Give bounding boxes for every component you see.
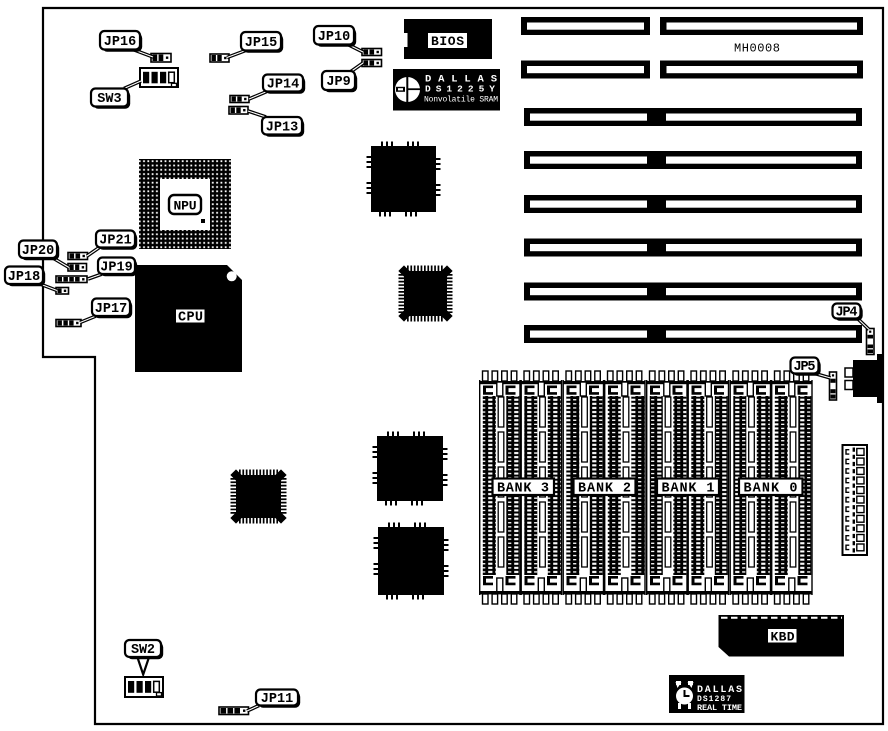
svg-text:Nonvolatile SRAM: Nonvolatile SRAM xyxy=(424,96,498,105)
svg-text:MH0008: MH0008 xyxy=(734,42,780,56)
svg-text:SW3: SW3 xyxy=(97,92,121,107)
svg-text:BANK 2: BANK 2 xyxy=(578,482,631,497)
svg-text:JP15: JP15 xyxy=(245,36,277,51)
svg-text:JP9: JP9 xyxy=(326,75,350,90)
svg-text:JP11: JP11 xyxy=(261,692,293,707)
svg-text:BANK 1: BANK 1 xyxy=(662,482,715,497)
svg-text:JP4: JP4 xyxy=(836,306,858,321)
svg-text:JP20: JP20 xyxy=(22,244,54,259)
svg-text:BANK 0: BANK 0 xyxy=(744,482,798,497)
svg-text:NPU: NPU xyxy=(174,199,197,214)
svg-text:JP17: JP17 xyxy=(95,302,127,317)
svg-text:KBD: KBD xyxy=(771,630,795,645)
svg-text:SW2: SW2 xyxy=(131,643,155,658)
svg-text:JP16: JP16 xyxy=(104,35,136,50)
svg-text:JP5: JP5 xyxy=(794,360,816,375)
svg-text:JP13: JP13 xyxy=(266,120,298,135)
svg-text:JP21: JP21 xyxy=(99,234,131,249)
svg-text:JP14: JP14 xyxy=(267,78,299,93)
svg-text:JP19: JP19 xyxy=(100,260,132,275)
svg-text:REAL TIME: REAL TIME xyxy=(697,703,742,713)
svg-text:JP18: JP18 xyxy=(8,270,40,285)
svg-text:BIOS: BIOS xyxy=(431,34,464,49)
svg-text:JP10: JP10 xyxy=(318,30,350,45)
svg-text:BANK 3: BANK 3 xyxy=(497,482,549,497)
svg-text:CPU: CPU xyxy=(178,311,203,326)
